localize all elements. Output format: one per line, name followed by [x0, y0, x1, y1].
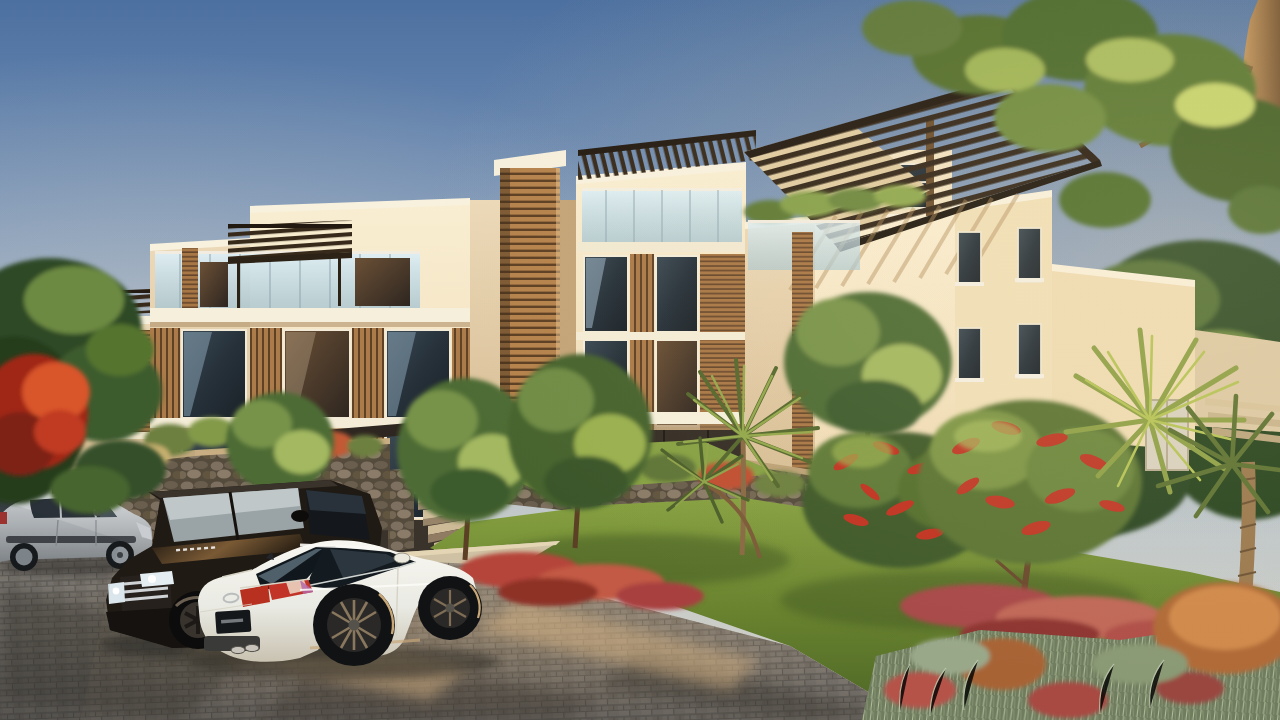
- architectural-render: [0, 0, 1280, 720]
- light-overlays: [0, 0, 1280, 720]
- render-canvas: [0, 0, 1280, 720]
